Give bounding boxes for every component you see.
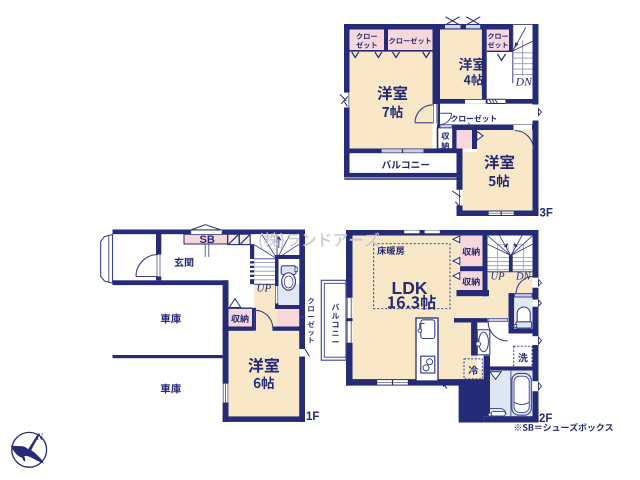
svg-text:SB: SB [200,234,215,246]
svg-text:N: N [36,433,44,443]
svg-text:3F: 3F [540,208,553,220]
svg-text:DN: DN [515,77,533,89]
svg-text:2F: 2F [539,413,552,425]
svg-text:UP: UP [257,283,272,295]
svg-text:UP: UP [491,271,506,282]
svg-text:LDK: LDK [392,278,428,298]
svg-text:1F: 1F [306,411,319,423]
svg-text:DN: DN [515,271,532,282]
